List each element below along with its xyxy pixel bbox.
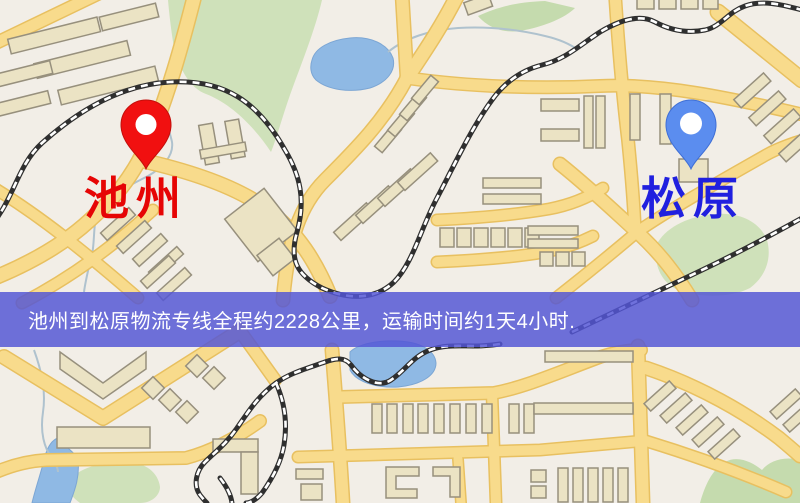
route-info-text: 池州到松原物流专线全程约2228公里，运输时间约1天4小时. xyxy=(0,305,575,334)
destination-pin-icon[interactable] xyxy=(665,99,717,170)
map-background xyxy=(0,0,800,503)
origin-pin-icon[interactable] xyxy=(120,99,172,170)
route-info-banner: 池州到松原物流专线全程约2228公里，运输时间约1天4小时. xyxy=(0,292,800,347)
destination-label: 松原 xyxy=(641,176,745,221)
map-screenshot: 池州 松原 池州到松原物流专线全程约2228公里，运输时间约1天4小时. xyxy=(0,0,800,503)
origin-label: 池州 xyxy=(84,176,188,221)
